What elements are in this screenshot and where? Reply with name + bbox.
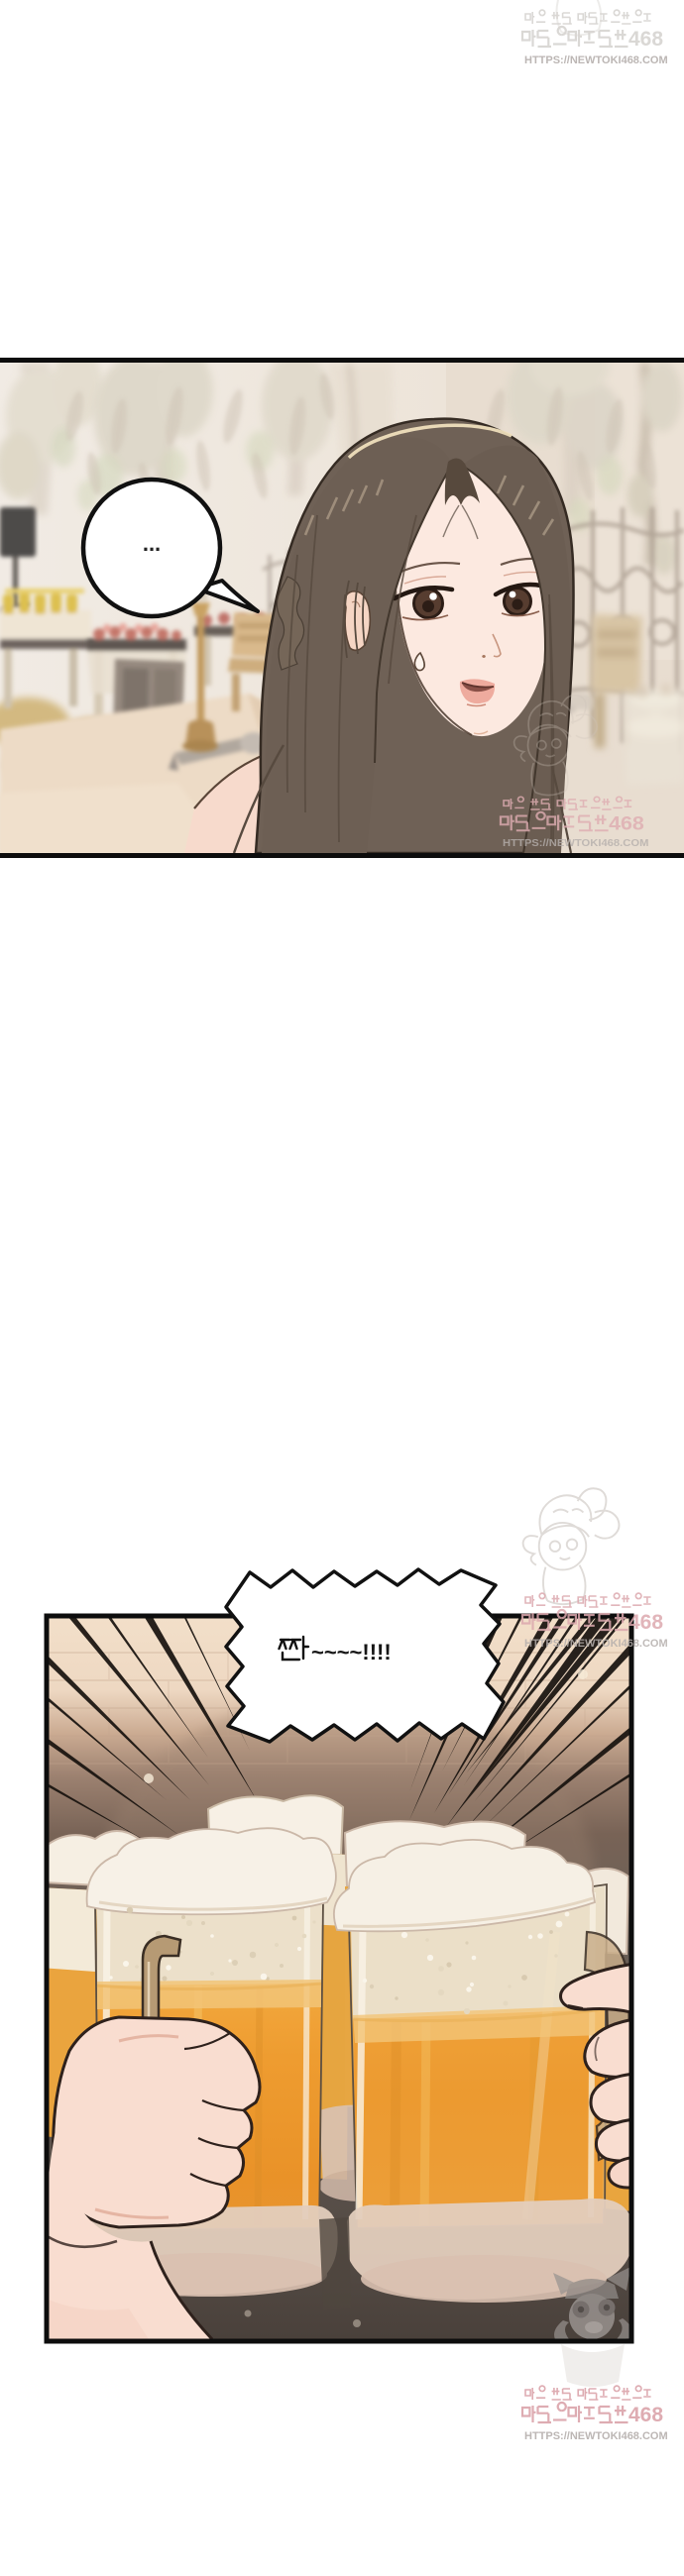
svg-text:...: ... [143, 531, 161, 556]
svg-text:~~~~!!!!: ~~~~!!!! [311, 1640, 392, 1664]
